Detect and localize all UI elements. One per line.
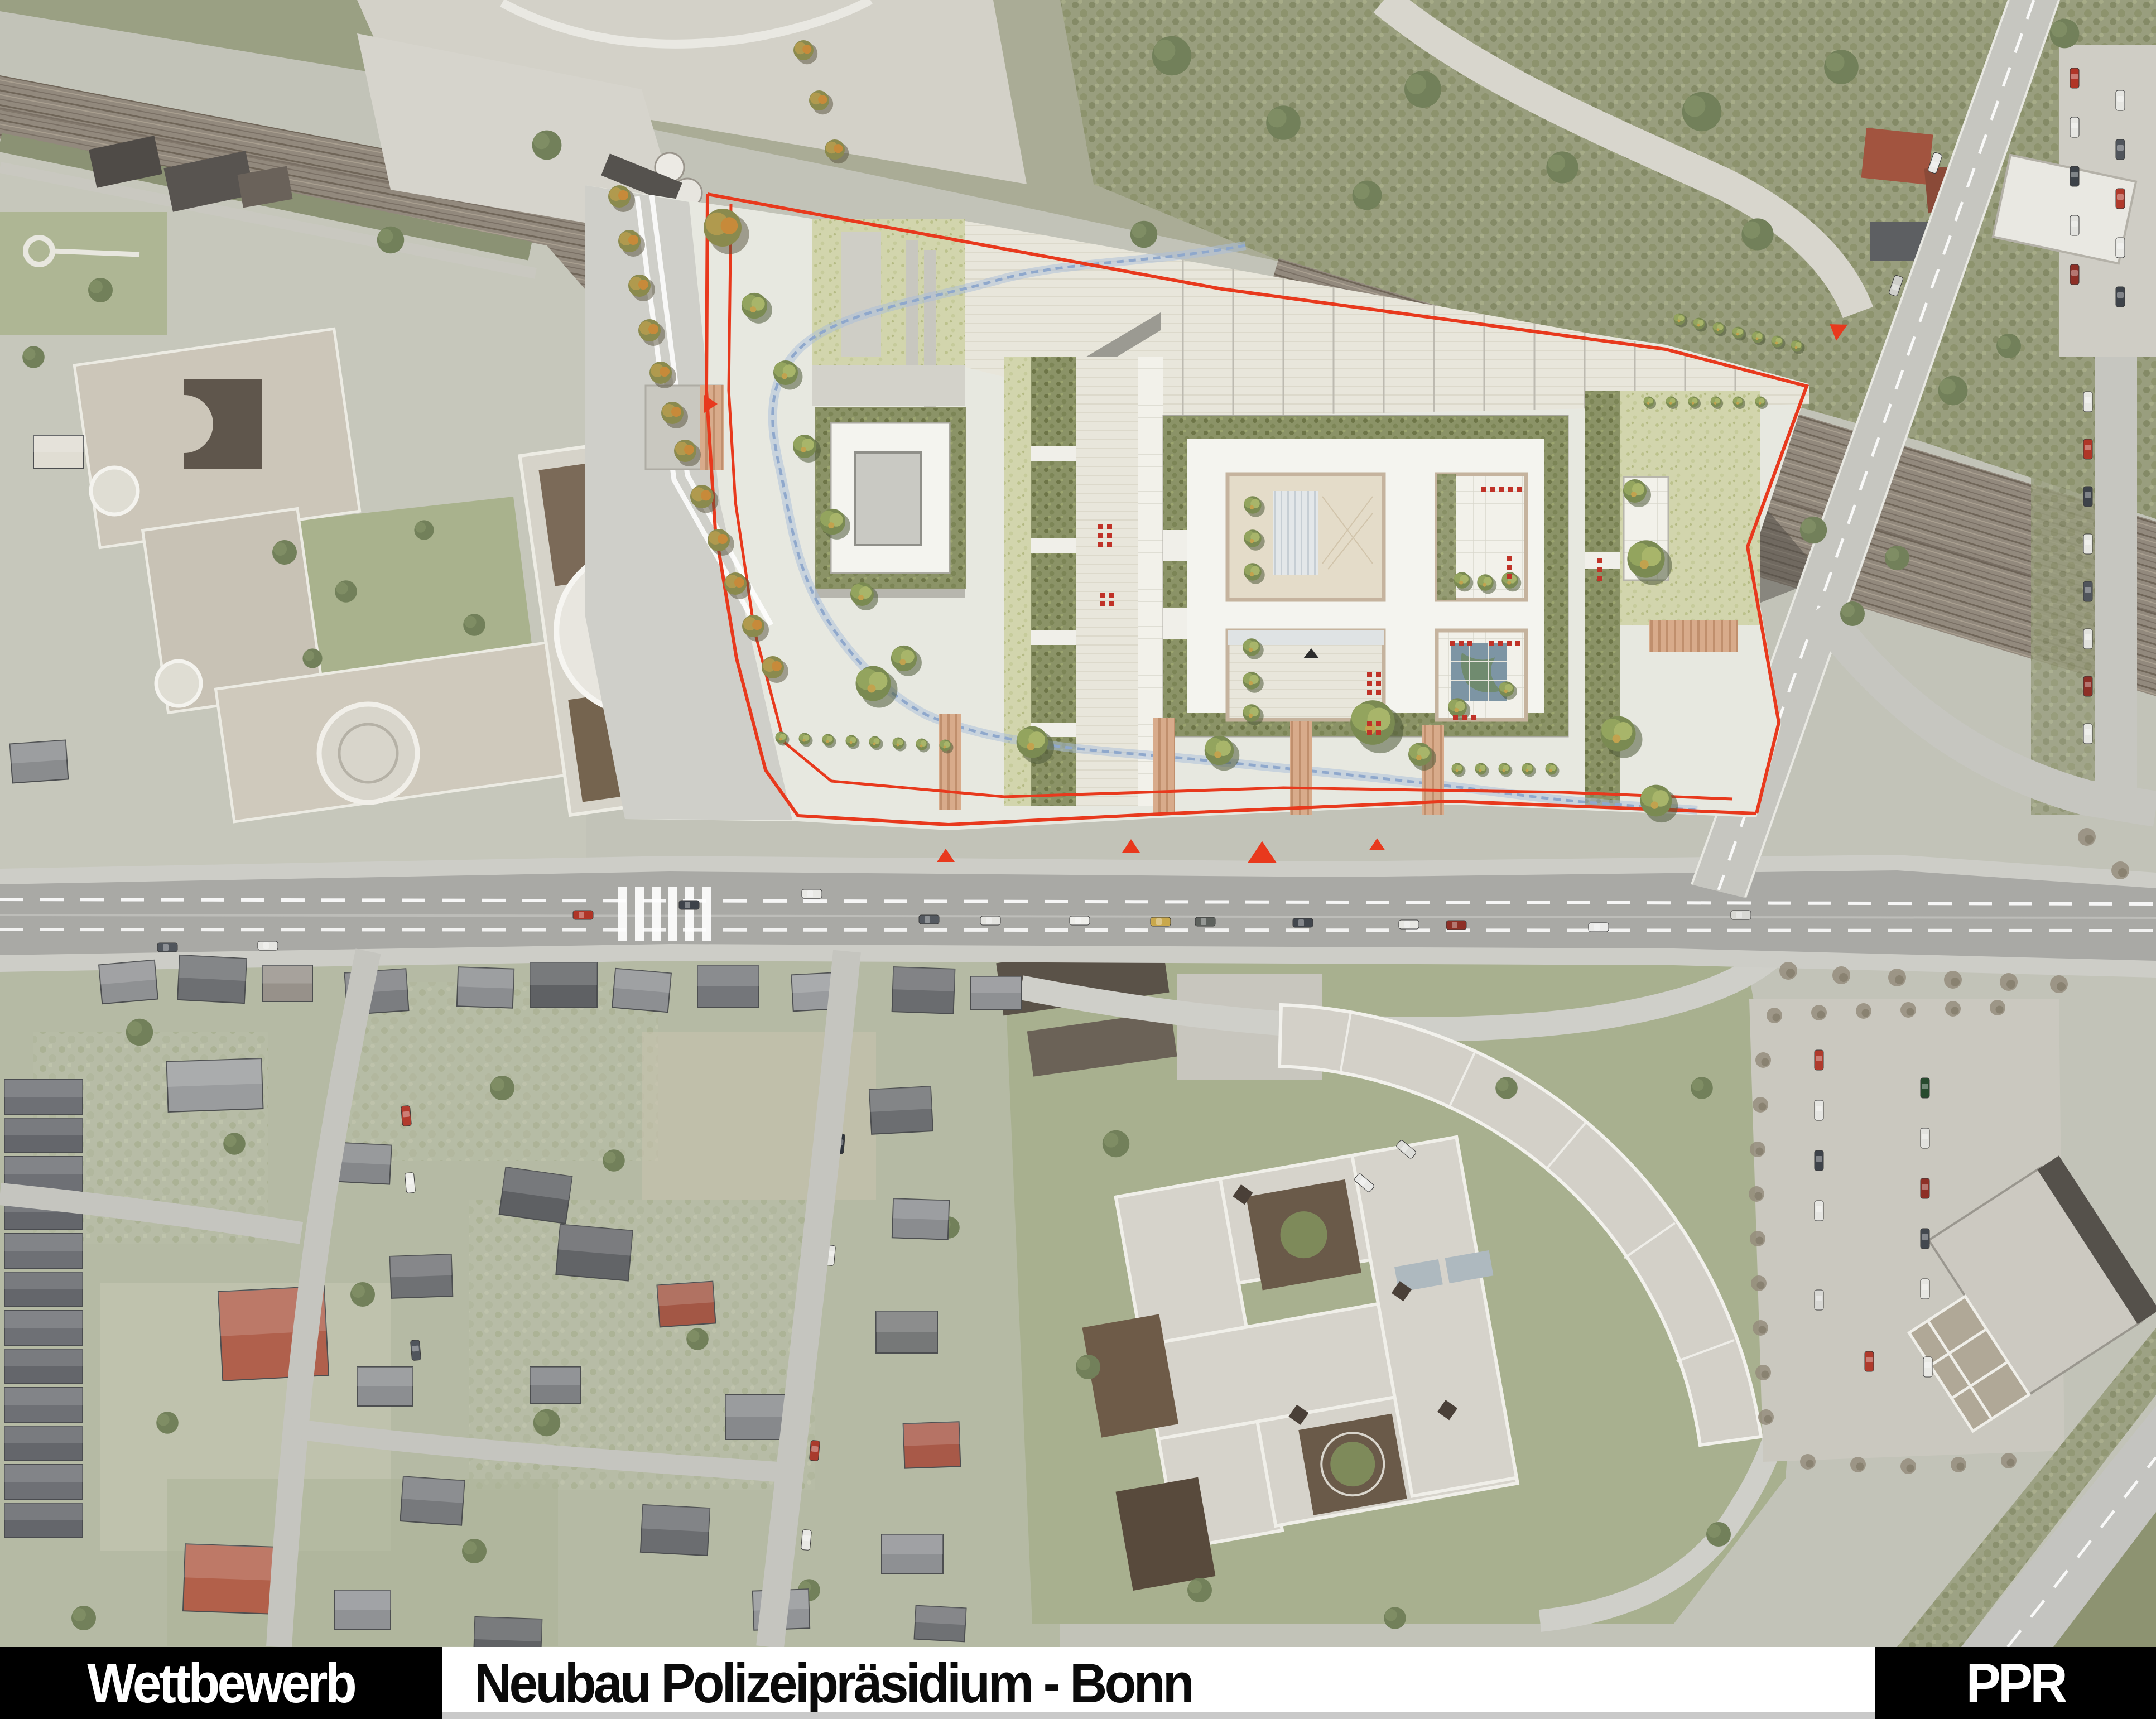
bare-tree-icon — [1945, 1001, 1961, 1017]
house-roof — [869, 1086, 933, 1134]
bare-tree-icon — [1753, 1320, 1768, 1336]
car — [1399, 920, 1419, 929]
bare-tree-icon — [1755, 1365, 1771, 1380]
red-dot-marker — [1100, 601, 1105, 606]
car — [1195, 917, 1215, 926]
tree-icon — [1266, 105, 1301, 140]
house-roof — [183, 1544, 275, 1614]
bare-tree-icon — [1800, 1454, 1816, 1470]
bare-tree-icon — [1750, 1142, 1765, 1157]
car — [2083, 581, 2092, 601]
rowhouse-roof — [4, 1118, 83, 1153]
house-roof — [882, 1534, 943, 1573]
tree-icon — [1996, 334, 2021, 358]
bare-tree-icon — [2111, 861, 2129, 879]
house-roof — [99, 960, 158, 1004]
red-dot-marker — [1489, 641, 1494, 646]
caption-bar: Wettbewerb Neubau Polizeipräsidium - Bon… — [0, 1647, 2156, 1719]
house-roof — [971, 976, 1021, 1010]
bare-tree-icon — [1850, 1457, 1866, 1472]
bare-tree-icon — [1767, 1008, 1782, 1023]
red-dot-marker — [1109, 601, 1114, 606]
house-roof — [400, 1476, 464, 1525]
car — [2083, 392, 2092, 412]
side-street — [2095, 357, 2137, 809]
car — [2116, 90, 2125, 110]
tree-icon — [1885, 546, 1909, 570]
house-roof — [474, 1617, 542, 1647]
tree-icon — [335, 580, 357, 603]
car — [1921, 1178, 1929, 1198]
car — [2116, 238, 2125, 258]
red-dot-marker — [1507, 556, 1512, 561]
car — [1070, 916, 1090, 925]
red-dot-marker — [1107, 542, 1112, 547]
rowhouse-roof — [4, 1465, 83, 1499]
car — [1921, 1279, 1929, 1299]
bare-tree-icon — [1751, 1275, 1767, 1291]
red-dot-marker — [1453, 715, 1458, 720]
red-dot-marker — [1376, 721, 1381, 726]
house-roof — [357, 1367, 413, 1406]
rowhouse-roof — [4, 1426, 83, 1461]
car — [802, 889, 822, 898]
garden-lawn — [0, 212, 167, 335]
red-dot-marker — [1376, 730, 1381, 735]
red-dot-marker — [1499, 487, 1504, 492]
caption-title-box: Neubau Polizeipräsidium - Bonn — [442, 1647, 1875, 1719]
bare-tree-icon — [1944, 971, 1962, 989]
house-roof — [892, 967, 955, 1014]
red-dot-marker — [1515, 641, 1520, 646]
car — [1731, 911, 1751, 919]
tree-icon — [1152, 36, 1191, 75]
car — [2083, 676, 2092, 696]
house-roof — [457, 967, 514, 1008]
car — [2070, 215, 2079, 235]
red-dot-marker — [1597, 576, 1602, 581]
car — [1815, 1201, 1823, 1221]
tree-icon — [1691, 1077, 1713, 1099]
bare-tree-icon — [1811, 1005, 1827, 1020]
red-dot-marker — [1107, 524, 1112, 529]
tree-icon — [1938, 376, 1968, 406]
rowhouse-roof — [4, 1311, 83, 1345]
tree-icon — [350, 1282, 375, 1307]
caption-left-box: Wettbewerb — [0, 1647, 442, 1719]
tree-icon — [686, 1328, 709, 1350]
tree-icon — [22, 346, 45, 368]
car — [1921, 1078, 1929, 1098]
tree-icon — [126, 1019, 153, 1046]
house-roof — [697, 965, 759, 1007]
car — [1151, 917, 1171, 926]
bare-tree-icon — [1755, 1052, 1771, 1068]
red-dot-marker — [1507, 641, 1512, 646]
competition-board: Wettbewerb Neubau Polizeipräsidium - Bon… — [0, 0, 2156, 1719]
tree-icon — [1353, 181, 1382, 210]
orange-deck — [1649, 620, 1738, 652]
bare-tree-icon — [1749, 1186, 1764, 1202]
car — [1921, 1229, 1929, 1249]
bare-tree-icon — [1753, 1097, 1768, 1113]
house-roof — [33, 435, 84, 469]
car — [1923, 1357, 1932, 1377]
rowhouse-roof — [4, 1388, 83, 1422]
house-roof — [390, 1254, 453, 1298]
red-dot-marker — [1498, 641, 1503, 646]
car — [2116, 287, 2125, 307]
house-roof — [725, 1395, 787, 1439]
car — [1815, 1290, 1823, 1310]
red-dot-marker — [1517, 487, 1522, 492]
car — [401, 1105, 411, 1126]
office-label: PPR — [1966, 1651, 2064, 1715]
bare-tree-icon — [1888, 969, 1906, 986]
bare-tree-icon — [2078, 828, 2096, 846]
tree-icon — [490, 1076, 514, 1100]
car — [573, 911, 593, 919]
car — [157, 943, 177, 952]
house-roof — [530, 1367, 580, 1403]
bare-tree-icon — [1832, 966, 1850, 984]
red-roof-house — [1861, 128, 1933, 185]
house-roof — [612, 969, 671, 1012]
rowhouse-roof — [4, 1349, 83, 1384]
car — [2070, 117, 2079, 137]
tree-icon — [223, 1133, 246, 1155]
tree-icon — [2050, 19, 2080, 49]
bare-tree-icon — [2001, 1453, 2017, 1468]
round-hall-roof — [319, 704, 417, 802]
tree-icon — [533, 1409, 560, 1436]
red-dot-marker — [1597, 567, 1602, 572]
bare-tree-icon — [2000, 973, 2018, 991]
red-dot-marker — [1367, 690, 1372, 695]
rowhouse-roof — [4, 1234, 83, 1268]
tree-icon — [462, 1539, 487, 1563]
red-dot-marker — [1467, 641, 1472, 646]
car — [1865, 1351, 1874, 1371]
tree-icon — [1741, 218, 1773, 250]
red-dot-marker — [1471, 715, 1476, 720]
bare-tree-icon — [1990, 1000, 2005, 1015]
rowhouse-roof — [4, 1503, 83, 1538]
red-dot-marker — [1109, 593, 1114, 598]
red-dot-marker — [1367, 681, 1372, 686]
tree-icon — [1130, 221, 1157, 248]
house-roof — [892, 1198, 949, 1239]
house-roof — [641, 1505, 710, 1556]
house-roof — [657, 1282, 716, 1327]
tree-icon — [1706, 1522, 1731, 1547]
tree-icon — [1384, 1607, 1406, 1629]
red-dot-marker — [1376, 672, 1381, 677]
caption-right-box: PPR — [1875, 1647, 2156, 1719]
car — [2083, 534, 2092, 554]
car — [1293, 918, 1313, 927]
car — [2116, 189, 2125, 209]
car — [980, 916, 1000, 925]
red-dot-marker — [1376, 690, 1381, 695]
house-roof — [903, 1422, 961, 1468]
tree-icon — [1682, 92, 1721, 131]
red-dot-marker — [1507, 574, 1512, 579]
tree-icon — [1103, 1130, 1129, 1157]
car — [1446, 921, 1466, 930]
rowhouse-roof — [4, 1080, 83, 1114]
car — [2070, 166, 2079, 186]
red-dot-marker — [1376, 681, 1381, 686]
house-roof — [177, 955, 247, 1003]
red-dot-marker — [1100, 593, 1105, 598]
north-lawn-panels — [812, 219, 965, 417]
tree-icon — [1495, 1077, 1518, 1099]
tree-icon — [1076, 1355, 1100, 1379]
tree-icon — [302, 648, 322, 668]
red-dot-marker — [1508, 487, 1513, 492]
tree-icon — [1824, 50, 1859, 84]
red-dot-marker — [1098, 524, 1103, 529]
house-roof — [556, 1225, 632, 1281]
car — [1815, 1150, 1823, 1171]
project-title: Neubau Polizeipräsidium - Bonn — [474, 1651, 1192, 1715]
tree-icon — [1800, 517, 1827, 543]
car — [679, 901, 699, 909]
red-dot-marker — [1597, 558, 1602, 563]
car — [2083, 629, 2092, 649]
car — [809, 1440, 820, 1461]
tree-icon — [1404, 71, 1441, 108]
car — [1815, 1100, 1823, 1120]
house-roof — [499, 1167, 572, 1224]
tree-icon — [1187, 1578, 1212, 1602]
tree-icon — [88, 278, 113, 302]
tree-icon — [463, 614, 485, 636]
tree-icon — [272, 540, 297, 565]
car — [2070, 68, 2079, 88]
red-dot-marker — [1490, 487, 1495, 492]
red-dot-marker — [1507, 565, 1512, 570]
red-dot-marker — [1107, 533, 1112, 538]
house-roof — [335, 1590, 391, 1629]
tree-icon — [377, 227, 404, 253]
car — [801, 1529, 811, 1550]
house-roof — [262, 965, 312, 1001]
car — [410, 1340, 421, 1360]
bare-tree-icon — [1779, 962, 1797, 980]
tree-icon — [414, 520, 434, 540]
house-roof — [914, 1606, 966, 1642]
car — [2083, 724, 2092, 744]
car — [2083, 487, 2092, 507]
car — [2116, 139, 2125, 160]
red-dot-marker — [1367, 721, 1372, 726]
red-dot-marker — [1462, 715, 1467, 720]
rowhouse-roof — [4, 1272, 83, 1307]
car — [919, 915, 939, 924]
red-dot-marker — [1450, 641, 1455, 646]
bare-tree-icon — [1900, 1458, 1916, 1474]
car — [1589, 923, 1609, 932]
bare-tree-icon — [1758, 1409, 1774, 1425]
car — [1815, 1050, 1823, 1070]
red-dot-marker — [1481, 487, 1486, 492]
bare-tree-icon — [1750, 1231, 1765, 1246]
tree-icon — [532, 131, 562, 160]
round-turret — [91, 468, 138, 514]
house-roof — [530, 962, 597, 1007]
tree-icon — [71, 1606, 96, 1630]
tree-icon — [603, 1149, 625, 1172]
car — [258, 941, 278, 950]
aerial-site-plan — [0, 0, 2156, 1647]
bare-tree-icon — [1900, 1002, 1916, 1018]
red-dot-marker — [1098, 533, 1103, 538]
house-roof — [166, 1058, 263, 1112]
bare-tree-icon — [1856, 1003, 1871, 1019]
square-courtyard-building — [815, 407, 965, 598]
red-dot-marker — [1367, 730, 1372, 735]
car — [405, 1172, 415, 1193]
inner-courtyard — [855, 452, 921, 545]
house-roof — [10, 740, 69, 783]
bare-tree-icon — [2050, 975, 2068, 993]
house-roof — [876, 1311, 937, 1353]
car — [2070, 264, 2079, 285]
bare-tree-icon — [1951, 1457, 1966, 1472]
car — [2083, 439, 2092, 459]
tree-icon — [156, 1412, 179, 1434]
tree-icon — [1546, 151, 1578, 183]
competition-label: Wettbewerb — [88, 1651, 355, 1715]
round-turret — [156, 661, 201, 706]
red-dot-marker — [1098, 542, 1103, 547]
tree-icon — [1840, 601, 1865, 626]
red-dot-marker — [1367, 672, 1372, 677]
car — [1921, 1128, 1929, 1148]
red-dot-marker — [1459, 641, 1464, 646]
